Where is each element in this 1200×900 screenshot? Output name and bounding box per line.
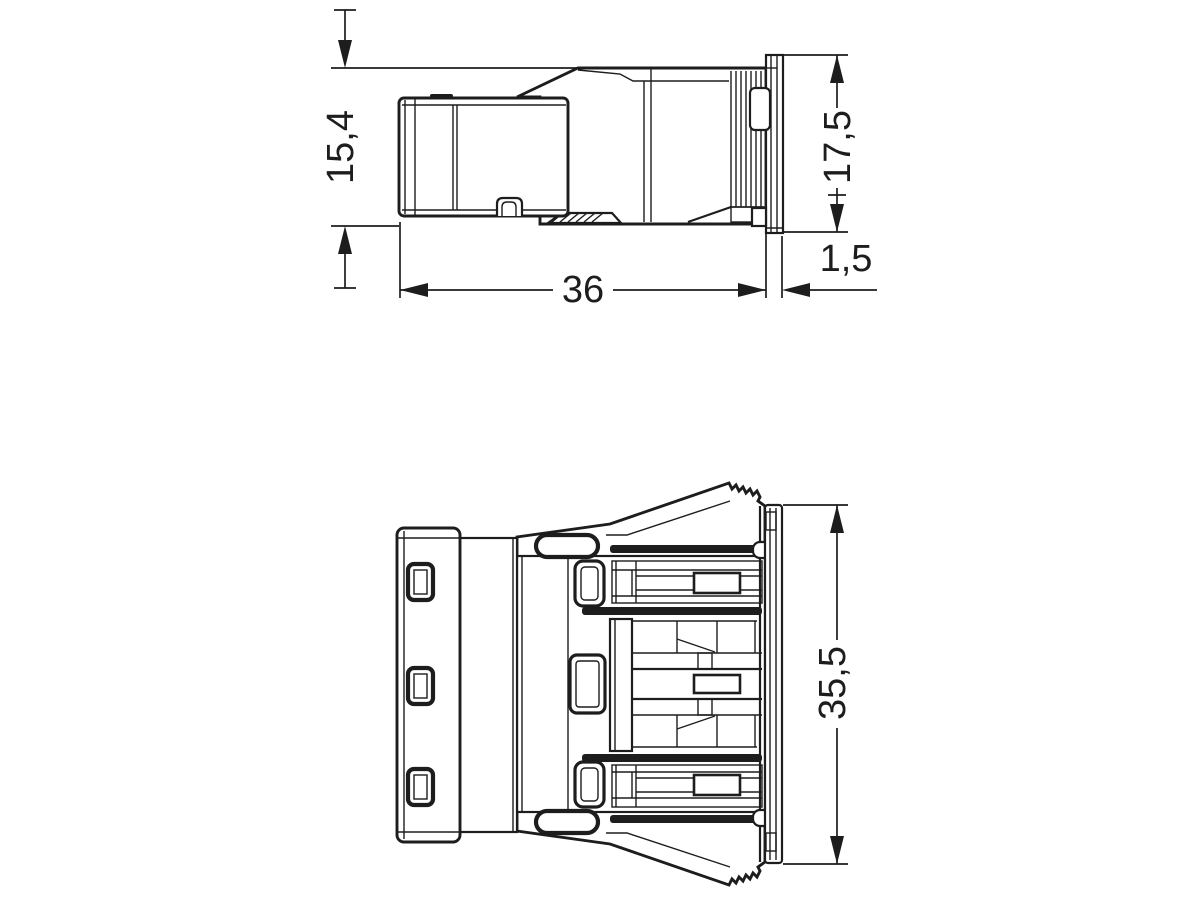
connector-dimension-drawing: 15,4 17,5 36 1,5	[0, 0, 1200, 900]
side-view: 15,4 17,5 36 1,5	[320, 10, 877, 311]
dimension-1-5: 1,5	[782, 236, 877, 298]
dim-15-4-label: 15,4	[320, 110, 362, 184]
dim-36-label: 36	[562, 269, 604, 311]
dim-17-5-label: 17,5	[817, 110, 859, 184]
front-view: 35,5	[397, 483, 854, 885]
contact-opening-1	[408, 564, 433, 600]
socket-face-plate	[397, 528, 460, 842]
coding-key	[570, 655, 605, 713]
contact-opening-2	[408, 668, 433, 704]
keyway-notch	[497, 198, 522, 216]
dimension-36: 36	[400, 222, 766, 311]
front-band	[458, 538, 517, 832]
contact-opening-3	[408, 769, 433, 805]
coding-slots	[570, 561, 605, 807]
latch-tab	[750, 88, 770, 130]
dim-35-5-label: 35,5	[812, 646, 854, 720]
technical-drawing-canvas: 15,4 17,5 36 1,5	[0, 0, 1200, 900]
plug-nose	[399, 94, 568, 216]
dimension-35-5: 35,5	[783, 505, 854, 864]
flange-front	[765, 505, 782, 863]
dim-1-5-label: 1,5	[820, 238, 873, 280]
dimension-17-5: 17,5	[784, 55, 859, 232]
